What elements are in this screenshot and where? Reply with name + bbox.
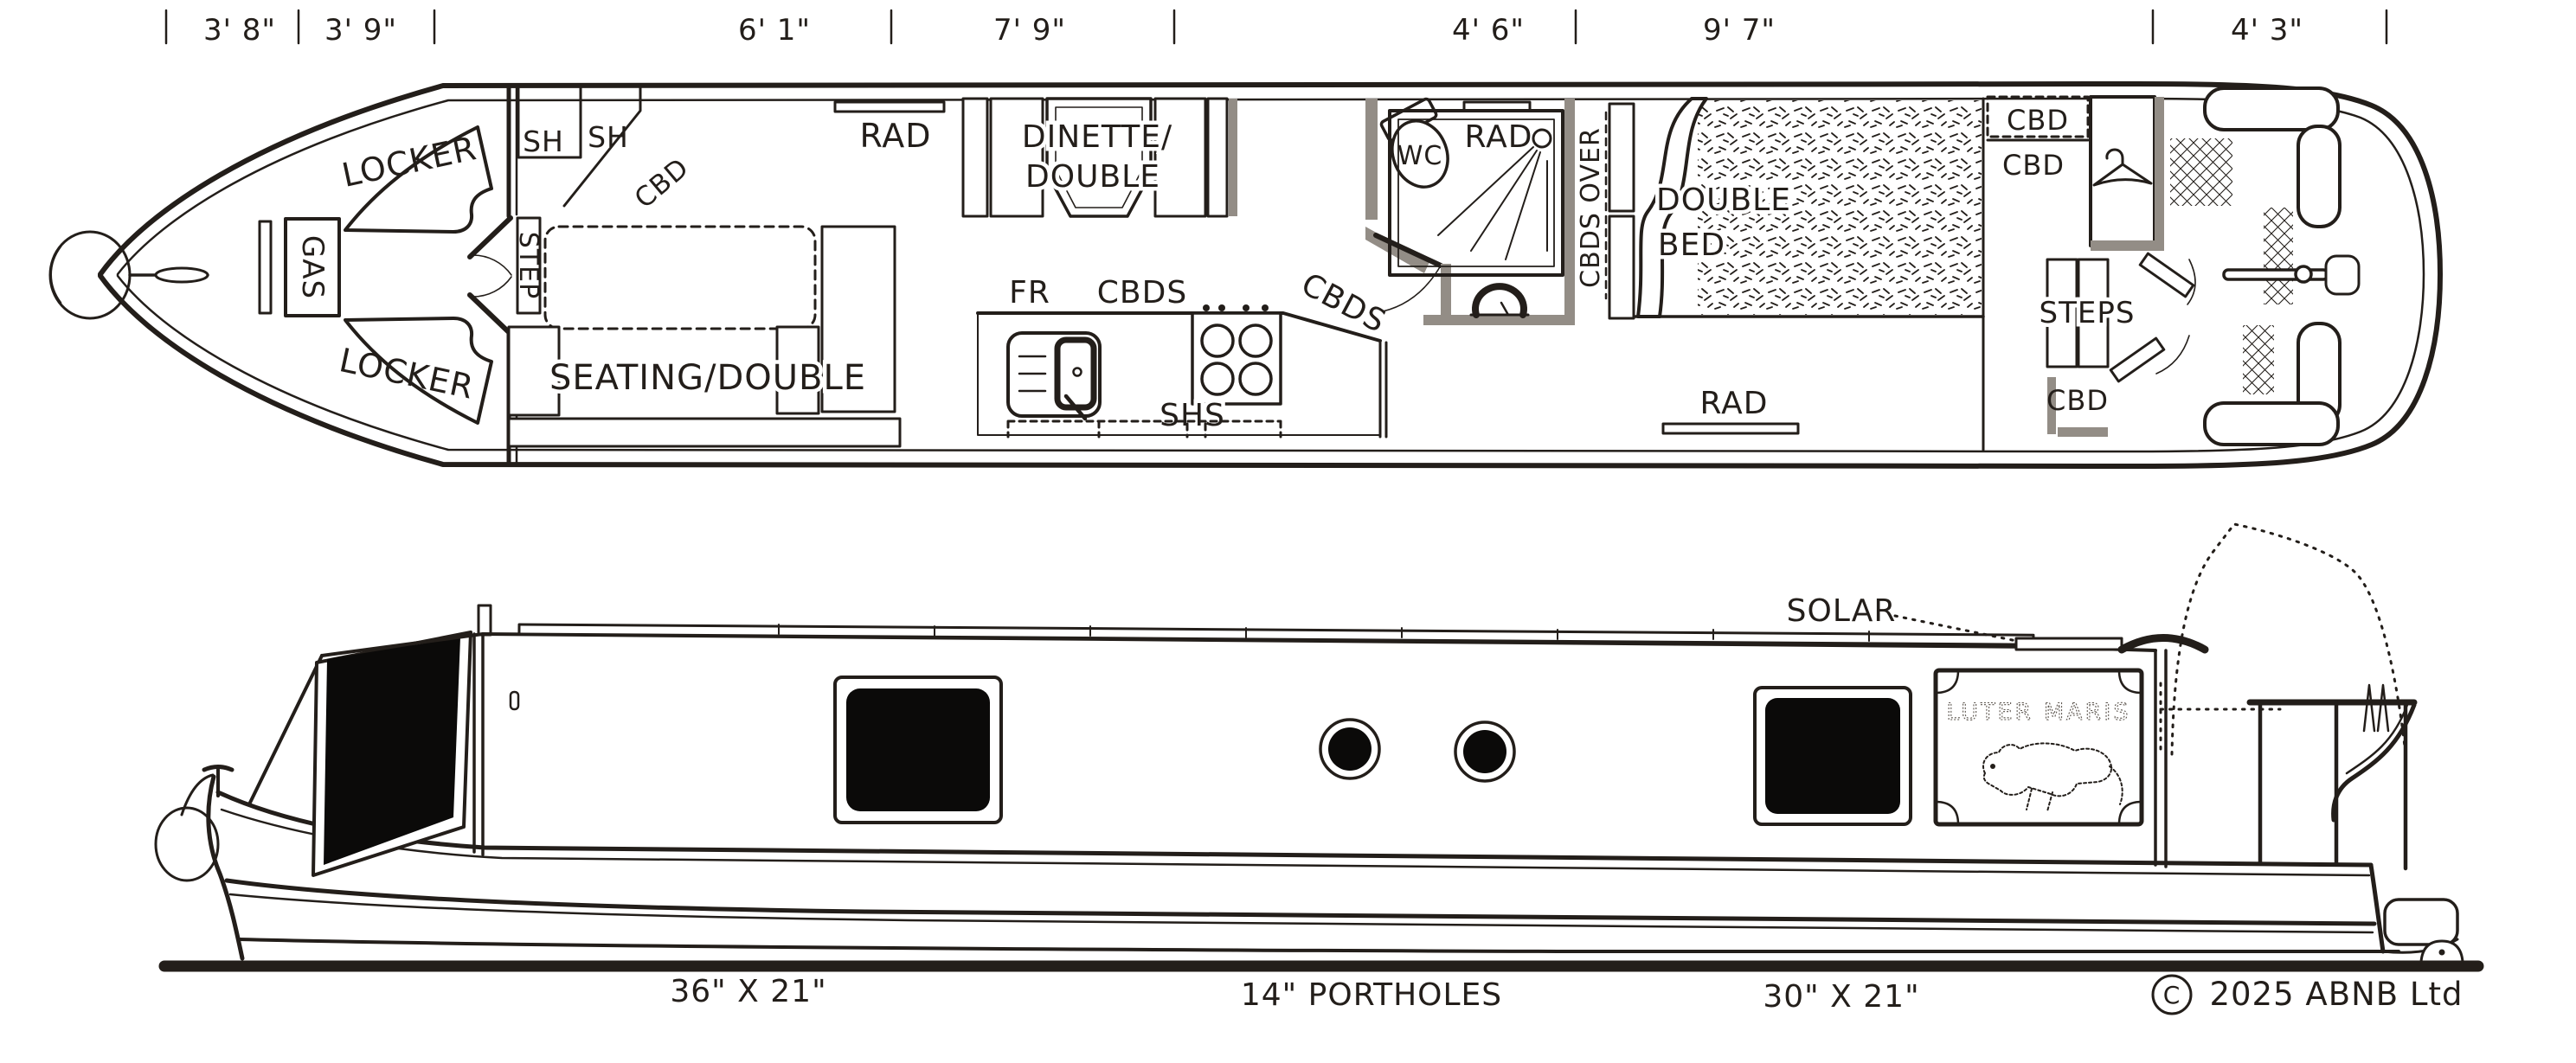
cratch-pennant <box>479 605 491 635</box>
steps-label: STEPS <box>2040 296 2136 330</box>
shelf-1-label: SH <box>523 125 564 158</box>
name-plate: LUTER MARIS <box>1936 670 2142 824</box>
dimension-label: 3' 9" <box>324 13 397 48</box>
caption-row: 36" X 21" 14" PORTHOLES 30" X 21" C 2025… <box>670 974 2463 1015</box>
pram-hood-bundle <box>2122 638 2205 650</box>
cbds-over-label: CBDS OVER <box>1576 127 1606 288</box>
porthole <box>1455 722 1514 781</box>
dimension-label: 4' 3" <box>2231 13 2303 48</box>
dimension-label: 4' 6" <box>1452 13 1525 48</box>
boat-name: LUTER MARIS <box>1947 699 2131 726</box>
cabin-door-detail <box>511 692 518 709</box>
cratch-board <box>260 221 271 313</box>
gas-locker-label: GAS <box>295 235 330 299</box>
pram-hood-outline <box>2161 524 2406 754</box>
bow-stem <box>209 777 242 958</box>
cbd-low-label: CBD <box>2046 384 2109 417</box>
wc-label: WC <box>1397 141 1443 171</box>
bathroom-rad-label: RAD <box>1465 119 1533 155</box>
aft-window <box>1755 688 1911 824</box>
dinette-label-1: DINETTE/ <box>1022 119 1172 155</box>
copyright-symbol: C <box>2163 981 2181 1009</box>
saloon-radiator <box>835 102 944 112</box>
dinette-label-2: DOUBLE <box>1025 159 1160 195</box>
bedroom-rad-label: RAD <box>1700 386 1769 421</box>
bed-label-2: BED <box>1658 227 1725 263</box>
dinette <box>963 99 1237 216</box>
cbd-mid-label: CBD <box>2002 149 2065 182</box>
aft-window-caption: 30" X 21" <box>1763 979 1919 1015</box>
dimension-label: 6' 1" <box>738 13 811 48</box>
dimension-label: 9' 7" <box>1703 13 1776 48</box>
stern-seat <box>2298 126 2340 227</box>
galley-sink <box>1008 333 1100 419</box>
fridge-label: FR <box>1009 275 1050 311</box>
saloon-rad-label: RAD <box>859 117 931 155</box>
step-label: STEP <box>513 232 543 299</box>
bed-label-1: DOUBLE <box>1656 183 1791 218</box>
copyright: C 2025 ABNB Ltd <box>2153 976 2464 1014</box>
pennant-icon <box>2364 685 2388 731</box>
seating-label: SEATING/DOUBLE <box>549 358 866 398</box>
plan-view: GAS LOCKER LOCKER SH SH CBD STEP SE <box>50 84 2440 466</box>
dimension-label: 3' 8" <box>203 13 276 48</box>
cbd-dashed-label: CBD <box>2007 104 2069 137</box>
galley-hob <box>1192 304 1281 404</box>
dimension-ticks <box>166 10 2386 43</box>
boat-layout-document: 3' 8" 3' 9" 6' 1" 7' 9" 4' 6" 9' 7" 4' 3… <box>0 0 2576 1063</box>
fore-window-caption: 36" X 21" <box>670 974 826 1009</box>
shelf-2-label: SH <box>588 120 629 154</box>
cbds-label: CBDS <box>1097 275 1187 311</box>
shs-label: SHS <box>1160 398 1225 433</box>
dimension-row: 3' 8" 3' 9" 6' 1" 7' 9" 4' 6" 9' 7" 4' 3… <box>166 10 2386 48</box>
dimension-label: 7' 9" <box>993 13 1066 48</box>
stern-counter <box>2371 865 2383 951</box>
stern-rail <box>2250 685 2414 868</box>
portholes-caption: 14" PORTHOLES <box>1241 977 1502 1013</box>
side-view: LUTER MARIS SOLAR <box>156 524 2478 966</box>
solar-label: SOLAR <box>1787 593 1897 629</box>
cratch-cover <box>249 605 491 875</box>
solar-panel <box>2016 638 2122 650</box>
bedroom-radiator <box>1663 424 1798 433</box>
porthole <box>1320 720 1379 778</box>
stern-seat <box>2205 88 2338 130</box>
boat-layout-drawing: 3' 8" 3' 9" 6' 1" 7' 9" 4' 6" 9' 7" 4' 3… <box>0 0 2576 1063</box>
stern-seat <box>2205 403 2338 445</box>
copyright-text: 2025 ABNB Ltd <box>2209 976 2463 1013</box>
fore-window <box>835 677 1001 823</box>
